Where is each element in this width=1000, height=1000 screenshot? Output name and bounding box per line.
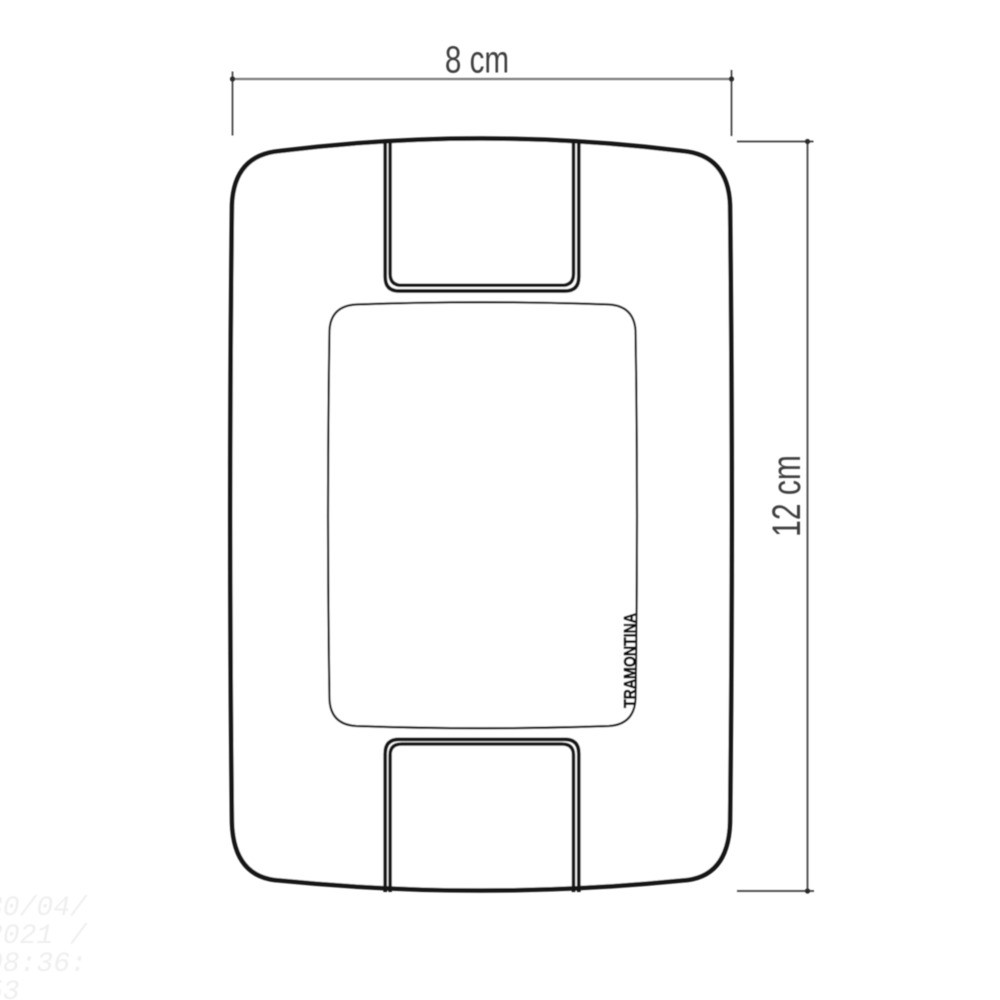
svg-text:TRAMONTINA: TRAMONTINA (621, 613, 640, 708)
svg-text:12 cm: 12 cm (765, 455, 809, 537)
svg-text:53: 53 (0, 977, 20, 1000)
svg-text:30/04/: 30/04/ (0, 893, 88, 924)
svg-text:08:36:: 08:36: (0, 949, 87, 980)
svg-text:8 cm: 8 cm (445, 39, 509, 81)
svg-text:2021 /: 2021 / (0, 921, 88, 952)
